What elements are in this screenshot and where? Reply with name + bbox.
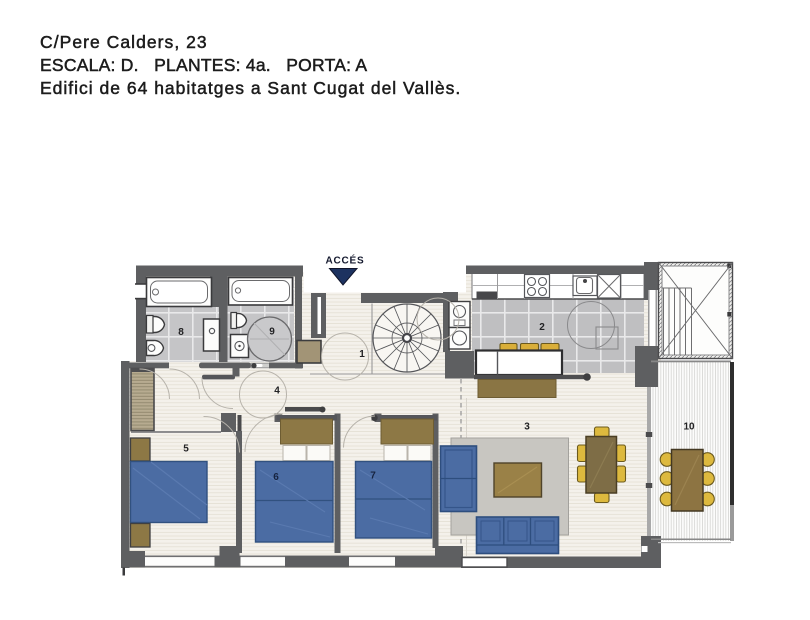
svg-text:1: 1 xyxy=(359,349,365,360)
svg-text:6: 6 xyxy=(273,472,279,483)
svg-text:7: 7 xyxy=(370,471,376,482)
svg-text:9: 9 xyxy=(269,327,275,338)
svg-text:5: 5 xyxy=(183,444,189,455)
svg-text:4: 4 xyxy=(274,386,280,397)
svg-text:10: 10 xyxy=(683,422,695,433)
svg-text:8: 8 xyxy=(178,327,184,338)
svg-text:2: 2 xyxy=(539,322,545,333)
svg-text:3: 3 xyxy=(524,422,530,433)
svg-text:ACCÉS: ACCÉS xyxy=(325,254,364,267)
